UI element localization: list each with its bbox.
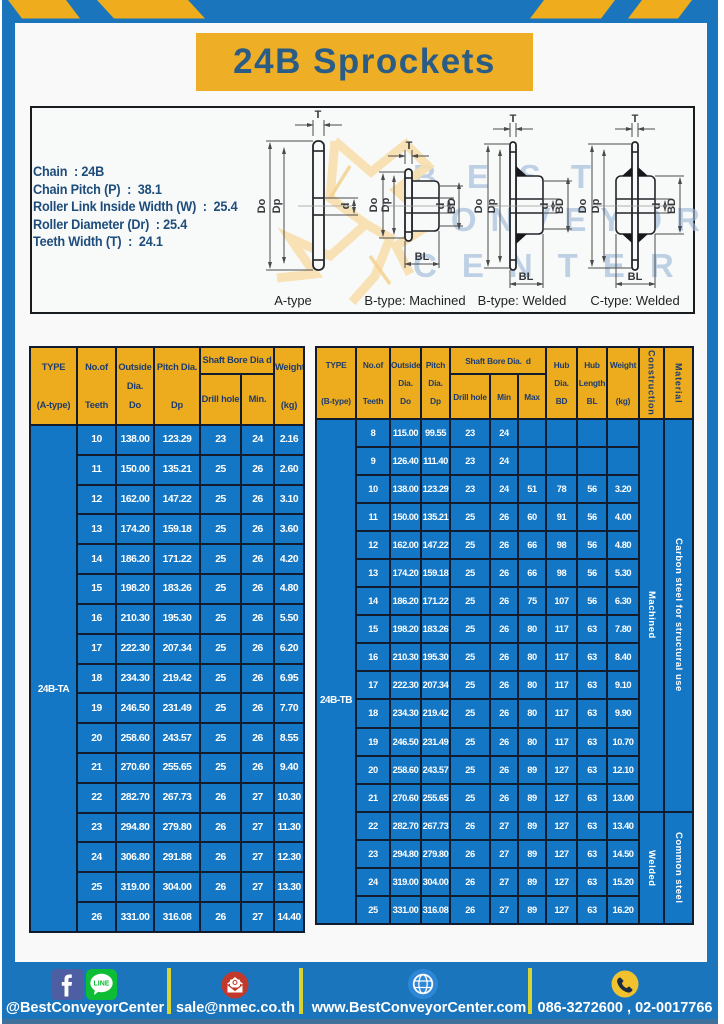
svg-text:B-type: Machined: B-type: Machined [364,293,465,308]
svg-text:Dp: Dp [271,198,283,213]
svg-text:T: T [510,113,517,125]
svg-text:BL: BL [628,271,643,283]
svg-text:Do: Do [368,197,380,212]
svg-text:BL: BL [519,271,534,283]
svg-text:T: T [315,109,322,121]
svg-text:LINE: LINE [94,981,110,988]
svg-text:Dp: Dp [380,197,392,212]
svg-text:T: T [632,113,639,125]
svg-text:Do: Do [256,198,268,213]
svg-text:BL: BL [415,251,430,263]
svg-text:T: T [406,140,413,152]
svg-text:B-type: Welded: B-type: Welded [478,293,567,308]
svg-text:C-type: Welded: C-type: Welded [590,293,679,308]
svg-text:Do: Do [473,198,485,213]
svg-text:Do: Do [577,198,589,213]
svg-text:A-type: A-type [274,293,312,308]
